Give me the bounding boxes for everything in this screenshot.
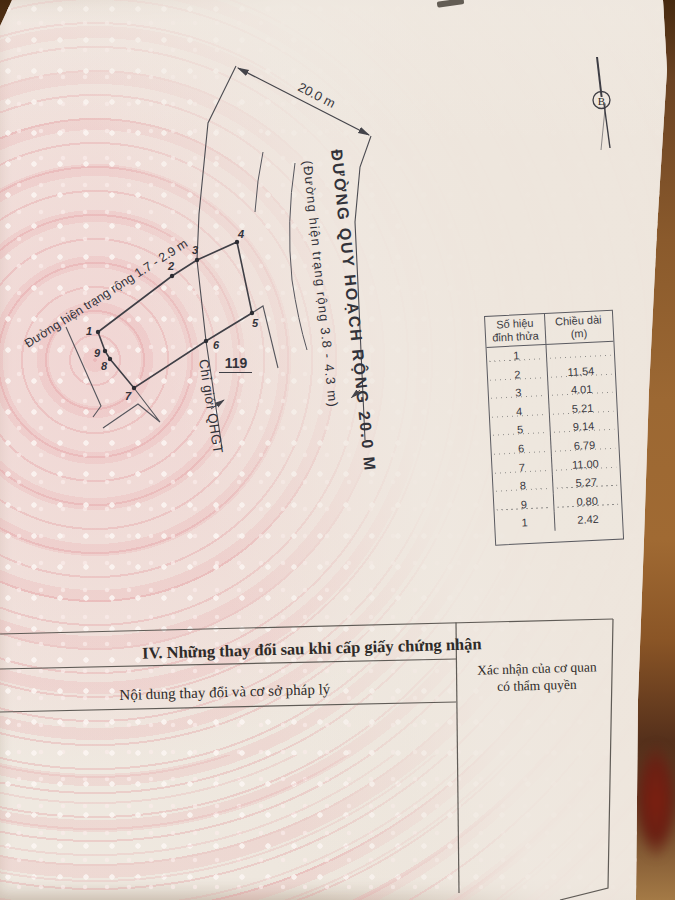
section-iv-left-header: Nội dung thay đổi và cơ sở pháp lý: [119, 681, 331, 703]
existing-road-label: Đường hiện trạng rộng 1.7 - 2.9 m: [22, 236, 190, 350]
east-neighbour-boundary: [252, 306, 278, 368]
vertex-label-6: 6: [213, 339, 220, 351]
cut-off-text-mark: [437, 0, 465, 8]
vertex-label-5: 5: [252, 317, 259, 329]
parcel-number: 119: [225, 355, 248, 371]
vertex-label-1: 1: [86, 325, 92, 337]
section-iv-right-header-line1: Xác nhận của cơ quan: [477, 659, 597, 677]
col1-header-line2: đỉnh thửa: [492, 329, 539, 343]
planned-road-label: ĐƯỜNG QUY HOẠCH RỘNG 20.0 M: [328, 148, 380, 472]
section-iv-right-header-line2: có thẩm quyền: [497, 677, 577, 694]
vertex-label-8: 8: [101, 360, 108, 372]
col2-header-line1: Chiều dài: [555, 313, 602, 327]
col2-header-line2: (m): [570, 327, 587, 340]
dimension-line-20m: [238, 68, 369, 135]
photo-background: B 20.0 m 1 2 3 4 5 6 7 8: [0, 0, 675, 900]
dimension-label: 20.0 m: [296, 79, 338, 111]
photo-of-land-certificate: { "compass": { "north_label": "B" }, "ma…: [0, 0, 675, 900]
vertex-label-7: 7: [125, 390, 132, 402]
row-vertex: 1: [495, 512, 556, 534]
col1-header-line1: Số hiệu: [496, 317, 534, 331]
existing-road-edge-1: [255, 152, 263, 212]
west-road-outer-edge: [66, 327, 101, 417]
vertex-label-9: 9: [94, 347, 101, 359]
vertex-length-table: Số hiệu đỉnh thửa Chiều dài (m) 1 211.54…: [484, 310, 624, 546]
vertex-label-4: 4: [237, 228, 244, 240]
section-iv-title: IV. Những thay đổi sau khi cấp giấy chứn…: [142, 634, 482, 662]
vertex-label-3: 3: [192, 244, 198, 256]
boundary-below-vertex7: [103, 388, 160, 428]
north-label: B: [598, 95, 605, 107]
row-length: 2.42: [555, 509, 622, 531]
